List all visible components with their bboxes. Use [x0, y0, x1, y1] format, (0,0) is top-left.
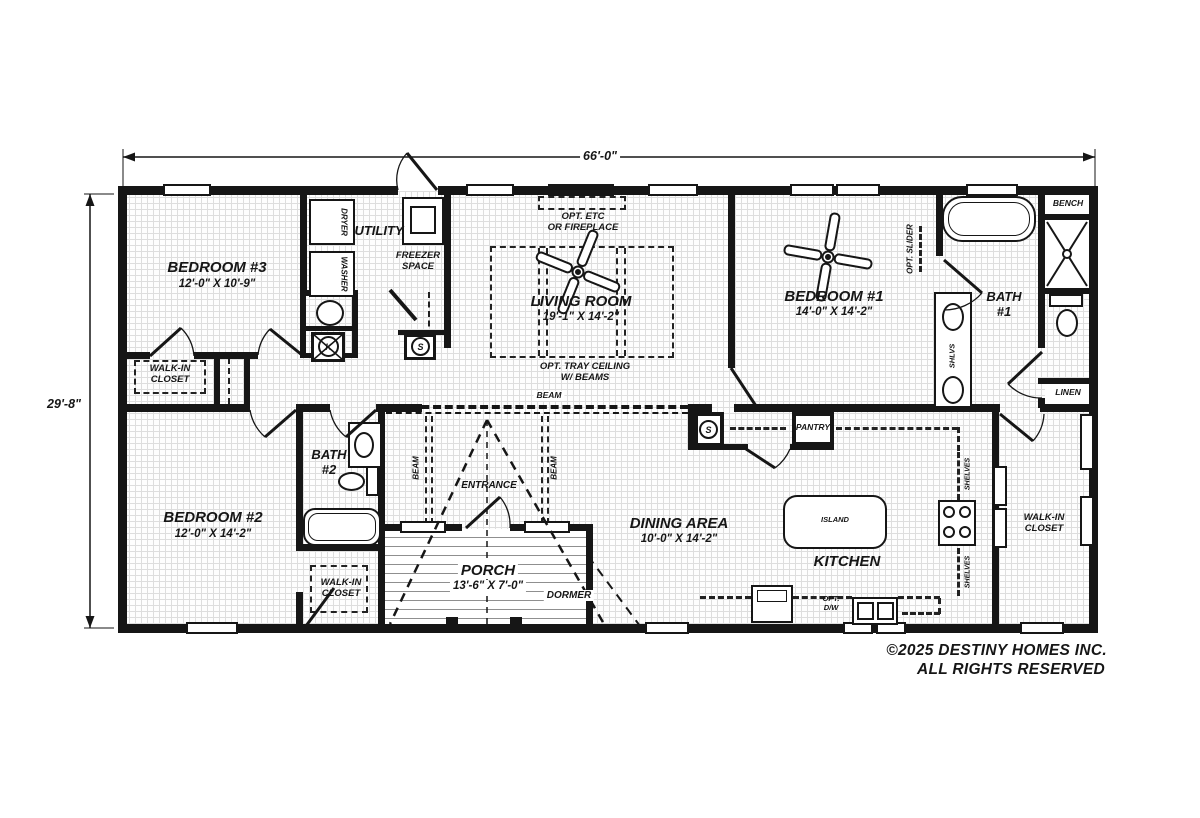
smoke-detector-icon: S — [699, 420, 718, 439]
window — [790, 184, 834, 196]
wall — [118, 624, 1098, 633]
beam-line — [425, 416, 427, 524]
porch-post — [446, 617, 458, 626]
window — [836, 184, 880, 196]
washer-label: WASHER — [340, 256, 349, 291]
beam-label: BEAM — [550, 456, 559, 480]
bathtub-inner — [948, 202, 1030, 236]
counter-line — [898, 596, 940, 599]
opt-slider-line — [919, 226, 922, 272]
counter-line — [957, 548, 960, 596]
kitchen-sink-bowl — [877, 602, 894, 620]
beam-line — [431, 416, 433, 524]
wall — [118, 404, 250, 412]
room-label-bedroom3: BEDROOM #3 — [167, 259, 266, 276]
wall — [300, 290, 306, 358]
room-label-living: LIVING ROOM — [531, 293, 632, 310]
counter-line — [957, 427, 960, 451]
counter-line — [957, 452, 960, 500]
opt-dw-label: OPT. D/W — [823, 595, 840, 612]
beam-line — [541, 416, 543, 524]
room-label-bedroom1: BEDROOM #1 — [784, 288, 883, 305]
room-label-freezer: FREEZER SPACE — [396, 251, 440, 273]
wall — [1040, 404, 1098, 412]
beam-label: BEAM — [533, 391, 564, 401]
wall — [1038, 378, 1096, 384]
wall — [444, 186, 451, 348]
counter-line — [902, 612, 940, 615]
dormer-label: DORMER — [544, 590, 594, 601]
sink — [942, 303, 964, 331]
wall — [300, 326, 358, 331]
room-label-kitchen: KITCHEN — [814, 553, 881, 570]
beam-line — [386, 412, 688, 414]
burner — [943, 506, 955, 518]
linen-label: LINEN — [1055, 388, 1081, 398]
window — [186, 622, 238, 634]
wall — [118, 186, 398, 195]
wall — [1038, 214, 1096, 220]
bench-label: BENCH — [1053, 199, 1083, 209]
room-dims-bedroom1: 14'-0" X 14'-2" — [796, 306, 872, 319]
wall — [118, 352, 150, 359]
closet-label: WALK-IN CLOSET — [150, 364, 191, 386]
room-dims-bedroom3: 12'-0" X 10'-9" — [179, 278, 255, 291]
room-dims-bedroom2: 12'-0" X 14'-2" — [175, 528, 251, 541]
window — [163, 184, 211, 196]
room-label-bedroom2: BEDROOM #2 — [163, 509, 262, 526]
sink — [942, 376, 964, 404]
window — [1020, 622, 1064, 634]
room-dims-dining: 10'-0" X 14'-2" — [641, 533, 717, 546]
wall — [728, 186, 735, 368]
burner — [943, 526, 955, 538]
dryer-label: DRYER — [340, 208, 349, 236]
wall — [378, 524, 400, 531]
window — [466, 184, 514, 196]
opt-etc-outline — [538, 196, 626, 210]
burner — [959, 506, 971, 518]
toilet-tank — [1049, 294, 1083, 307]
wall — [1038, 186, 1045, 348]
closet-shelf — [993, 466, 1007, 506]
floor-plan: S S K — [0, 0, 1200, 818]
shelves-label: SHELVES — [965, 556, 972, 588]
wall — [244, 352, 250, 412]
room-label-porch: PORCH — [458, 562, 518, 579]
wall — [586, 524, 593, 628]
entrance-label: ENTRANCE — [461, 480, 517, 491]
closet-shelf — [1080, 496, 1094, 546]
dimension-height-label: 29'-8" — [47, 397, 81, 411]
toilet — [1056, 309, 1078, 337]
opt-slider-label: OPT. SLIDER — [906, 224, 915, 274]
copyright-line1: ©2025 DESTINY HOMES INC. — [845, 641, 1107, 660]
window — [400, 521, 446, 533]
freezer-inner — [410, 206, 436, 234]
shower-area — [1045, 220, 1089, 288]
wall — [352, 290, 358, 358]
wall — [446, 524, 462, 531]
wall — [296, 404, 330, 412]
window — [524, 521, 570, 533]
copyright-line2: ALL RIGHTS RESERVED — [845, 660, 1107, 679]
shelves-label: SHELVES — [965, 458, 972, 490]
closet-label: WALK-IN CLOSET — [1024, 513, 1065, 535]
pantry-label: PANTRY — [796, 423, 830, 433]
wall — [296, 412, 303, 546]
wall — [1038, 398, 1045, 408]
toilet-tank — [366, 466, 379, 496]
burner — [959, 526, 971, 538]
opt-tray-label: OPT. TRAY CEILING W/ BEAMS — [540, 362, 630, 384]
room-label-bath1: BATH #1 — [986, 290, 1021, 320]
smoke-detector-icon: S — [411, 337, 430, 356]
counter-line — [836, 427, 958, 430]
room-dims-porch: 13'-6" X 7'-0" — [450, 580, 526, 593]
linen-shelf-line — [228, 358, 230, 404]
dimension-width-label: 66'-0" — [580, 149, 620, 163]
kitchen-sink-bowl — [857, 602, 874, 620]
bathtub-inner — [308, 513, 376, 541]
opt-etc-label: OPT. ETC OR FIREPLACE — [548, 212, 619, 234]
beam-line — [386, 405, 688, 409]
wall — [688, 404, 712, 412]
room-label-bath2: BATH #2 — [311, 448, 346, 478]
wall — [570, 524, 593, 531]
shlvs-label: SHLVS — [948, 344, 957, 369]
refrigerator-inner — [757, 590, 787, 602]
counter-line — [700, 596, 751, 599]
wall — [296, 592, 303, 628]
copyright: ©2025 DESTINY HOMES INC. ALL RIGHTS RESE… — [845, 641, 1107, 680]
sink — [354, 432, 374, 458]
water-heater-icon: K — [318, 336, 339, 357]
window — [966, 184, 1018, 196]
room-label-utility: UTILITY — [354, 224, 403, 239]
utility-sink — [316, 300, 344, 326]
beam-label: BEAM — [412, 456, 421, 480]
dimension-height — [84, 194, 114, 628]
wall — [300, 186, 307, 296]
window — [645, 622, 689, 634]
room-dims-living: 19'-1" X 14'-2" — [543, 311, 619, 324]
wall — [376, 404, 422, 412]
pantry-shelf-line — [730, 427, 786, 430]
island-label: ISLAND — [821, 516, 849, 525]
closet-label: WALK-IN CLOSET — [321, 578, 362, 600]
wall — [214, 352, 220, 412]
room-label-dining: DINING AREA — [630, 515, 729, 532]
closet-shelf — [993, 508, 1007, 548]
porch-post — [510, 617, 522, 626]
window — [648, 184, 698, 196]
closet-shelf — [1080, 414, 1094, 470]
